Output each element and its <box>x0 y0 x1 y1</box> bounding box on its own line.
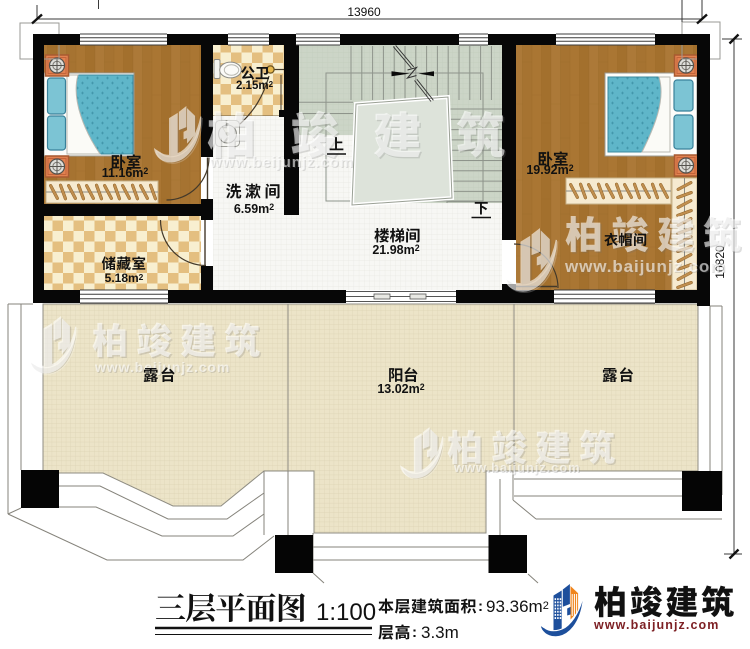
svg-text:3.3m: 3.3m <box>421 623 459 642</box>
svg-text:2.15m2: 2.15m2 <box>236 80 274 92</box>
svg-text:11.16m2: 11.16m2 <box>102 166 149 180</box>
svg-text:6.59m2: 6.59m2 <box>234 202 274 216</box>
svg-text:13.02m2: 13.02m2 <box>377 382 424 396</box>
svg-text::: : <box>412 624 417 641</box>
svg-text:19.92m2: 19.92m2 <box>526 163 573 177</box>
svg-text:www.baijunjz.com: www.baijunjz.com <box>593 618 719 632</box>
svg-text:www.baijunjz.com: www.baijunjz.com <box>453 460 581 475</box>
svg-text:www.beijunjz.com: www.beijunjz.com <box>209 154 354 171</box>
svg-text::: : <box>478 598 483 615</box>
svg-text:5.18m2: 5.18m2 <box>105 271 144 285</box>
svg-text:1:100: 1:100 <box>316 599 376 626</box>
svg-text:13960: 13960 <box>347 5 381 19</box>
svg-text:www.baijunjz.com: www.baijunjz.com <box>564 257 726 276</box>
svg-text:21.98m2: 21.98m2 <box>372 243 419 257</box>
svg-text:93.36m2: 93.36m2 <box>486 597 549 616</box>
